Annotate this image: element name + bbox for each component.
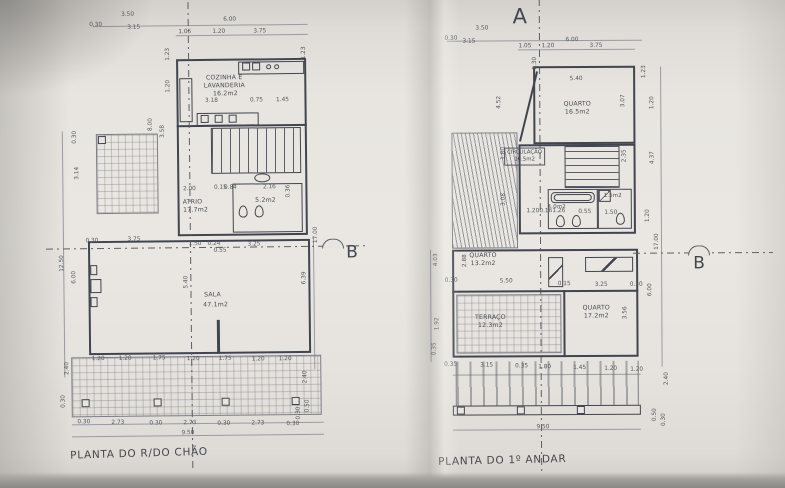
room-label-circulation: CIRCULAÇÃO 10.5m2 bbox=[504, 147, 545, 165]
dim-label: 0.30 bbox=[630, 282, 643, 288]
bathtub-inner bbox=[554, 194, 592, 201]
room-label-bedroom3: QUARTO bbox=[583, 304, 610, 311]
dim-label: 1.50 bbox=[604, 210, 617, 216]
dim-label: 3.25 bbox=[595, 282, 608, 288]
circulation-area: 10.5m2 bbox=[514, 156, 535, 162]
dim-label: 1.20 bbox=[541, 43, 554, 49]
dim-label: 1.20 bbox=[604, 366, 617, 372]
dimension-line bbox=[447, 40, 642, 42]
dim-label: 0.30 bbox=[532, 57, 538, 70]
wardrobe-icon bbox=[585, 257, 633, 272]
plan-title-first-floor: PLANTA DO 1º ANDAR bbox=[438, 453, 566, 468]
dim-label: 4.52 bbox=[496, 96, 502, 109]
section-marker-a: A bbox=[513, 4, 528, 28]
dim-label: 0.16 bbox=[539, 208, 552, 214]
dim-label: 1.26 bbox=[552, 208, 565, 214]
dim-label: 3.07 bbox=[620, 94, 626, 107]
dim-label: 3.15 bbox=[480, 362, 493, 368]
dim-label: 4.03 bbox=[433, 253, 439, 266]
dim-label: 3.08 bbox=[501, 193, 507, 206]
dim-label: 6.00 bbox=[647, 283, 653, 296]
dim-label: 4.37 bbox=[650, 151, 656, 164]
room-area-terrace: 12.3m2 bbox=[478, 322, 503, 329]
dim-label: 2.35 bbox=[622, 149, 628, 162]
section-marker-b: B bbox=[693, 253, 705, 273]
dim-label: 1.23 bbox=[641, 65, 647, 78]
room-area-wc: 1.5m2 bbox=[604, 193, 622, 199]
dim-label: 3.75 bbox=[589, 43, 602, 49]
column bbox=[457, 407, 465, 415]
terrace-paving bbox=[456, 294, 561, 354]
staircase bbox=[564, 146, 619, 188]
dim-label: 1.20 bbox=[526, 208, 539, 214]
column bbox=[577, 406, 585, 414]
dim-label: 5.50 bbox=[500, 278, 513, 284]
dim-label: 1.92 bbox=[434, 317, 440, 330]
dim-label: 1.45 bbox=[573, 365, 586, 371]
room-area-bedroom3: 17.2m2 bbox=[584, 312, 609, 319]
toilet-icon bbox=[572, 215, 581, 227]
dim-label: 0.30 bbox=[444, 36, 457, 42]
room-label-terrace: TERRAÇO bbox=[475, 314, 506, 321]
dim-label: 0.30 bbox=[445, 278, 458, 284]
room-label-bedroom1: QUARTO bbox=[564, 100, 591, 107]
dim-label: 1.80 bbox=[500, 147, 506, 160]
room-area-bedroom1: 16.5m2 bbox=[565, 108, 590, 115]
dim-label: 3.15 bbox=[462, 39, 475, 45]
dim-label: 0.30 bbox=[661, 413, 667, 426]
dim-label: 0.35 bbox=[515, 363, 528, 369]
dim-label: 9.50 bbox=[536, 424, 549, 430]
column bbox=[517, 406, 525, 414]
dim-label: 0.50 bbox=[652, 408, 658, 421]
dim-label: 6.00 bbox=[565, 37, 578, 43]
dim-label: 1.20 bbox=[645, 209, 651, 222]
dim-label: 1.20 bbox=[630, 367, 643, 373]
dim-label: 0.35 bbox=[444, 362, 457, 368]
dim-label: 0.15 bbox=[558, 281, 571, 287]
room-area-bedroom2: 13.2m2 bbox=[471, 260, 496, 267]
dim-label: 2.88 bbox=[462, 254, 468, 267]
wall-partition bbox=[563, 290, 565, 357]
circulation-name: CIRCULAÇÃO bbox=[507, 149, 542, 155]
floor-plan-photo: B COZINHA E LAVANDERIA 16.2m2 ATRIO 17.7… bbox=[0, 0, 785, 488]
dim-label: 2.40 bbox=[664, 372, 670, 385]
dim-label: 1.05 bbox=[518, 43, 531, 49]
dim-label: 0.55 bbox=[578, 209, 591, 215]
dim-label: 5.40 bbox=[570, 76, 583, 82]
porch-edge bbox=[453, 405, 641, 416]
dim-label: 1.80 bbox=[538, 364, 551, 370]
room-label-bedroom2: QUARTO bbox=[469, 252, 496, 259]
dimension-line bbox=[660, 67, 663, 367]
dim-label: 3.50 bbox=[475, 25, 488, 31]
dim-label: 1.20 bbox=[649, 96, 655, 109]
toilet-icon bbox=[556, 215, 565, 227]
dim-label: 17.00 bbox=[654, 233, 660, 250]
plan-first-floor: A B bbox=[0, 0, 785, 488]
dim-label: 0.35 bbox=[432, 342, 438, 355]
dimension-line bbox=[518, 49, 635, 51]
dim-label: 3.56 bbox=[622, 306, 628, 319]
